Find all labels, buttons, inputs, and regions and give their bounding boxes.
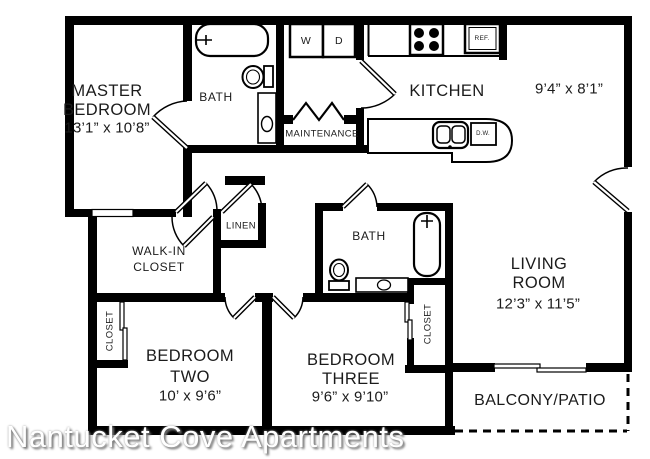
closet-right-slider [405, 302, 409, 322]
closet-left-slider [120, 302, 124, 330]
closet-left-label: CLOSET [105, 311, 115, 351]
bath-mid-label: BATH [352, 230, 386, 242]
kitchen-label: KITCHEN [409, 83, 484, 100]
vanity-sink [378, 280, 391, 290]
patio-slider-pane [494, 364, 540, 368]
living-room-label: ROOM [513, 275, 566, 292]
bath-top-label: BATH [199, 91, 233, 103]
bedroom-two-dims: 10’ x 9’6” [159, 389, 221, 404]
master-bedroom-label: BEDROOM [63, 102, 151, 119]
bedroom-three-dims: 9’6” x 9’10” [312, 390, 389, 405]
master-window [92, 210, 133, 217]
kitchen-sink-basin [437, 126, 450, 143]
bedroom-three-label: BEDROOM [307, 352, 395, 369]
toilet-tank [264, 66, 273, 87]
dining-dims: 9’4” x 8’1” [535, 82, 603, 97]
living-room-label: LIVING [511, 256, 568, 273]
bedroom-three-label: THREE [322, 371, 380, 388]
watermark: Nantucket Cove Apartments [6, 419, 404, 455]
living-room-dims: 12’3” x 11’5” [496, 297, 580, 312]
closet-right-slider [408, 320, 412, 340]
bedroom-two-label: BEDROOM [146, 348, 234, 365]
kitchen-sink-basin [452, 126, 465, 143]
closet-right-label: CLOSET [423, 304, 433, 344]
bifold-door [293, 103, 344, 120]
patio-slider-pane [537, 368, 586, 372]
toilet-tank [329, 281, 349, 290]
toilet-bowl-inner [334, 264, 345, 277]
refrigerator-label: REF. [475, 36, 490, 43]
master-bedroom-label: MASTER [71, 83, 142, 100]
bedroom-two-label: TWO [170, 369, 210, 386]
vanity-sink [262, 117, 273, 132]
stove-icon [410, 24, 443, 55]
walk-in-closet-label: WALK-IN [132, 245, 186, 257]
closet-left-slider [123, 328, 127, 360]
floor-plan: MASTER BEDROOM 13’1” x 10’8” BATH W D RE… [0, 0, 650, 459]
maintenance-label: MAINTENANCE [285, 129, 359, 139]
bath-top-fixtures [196, 24, 276, 143]
balcony-label: BALCONY/PATIO [474, 393, 606, 409]
walk-in-closet-label: CLOSET [133, 261, 185, 273]
sink-drain [448, 145, 452, 149]
linen-label: LINEN [226, 221, 256, 231]
washer-label: W [301, 36, 311, 47]
master-bedroom-dims: 13’1” x 10’8” [64, 121, 149, 136]
toilet-bowl-inner [247, 70, 260, 84]
dryer-label: D [335, 36, 343, 47]
dishwasher-label: D.W. [476, 131, 490, 137]
